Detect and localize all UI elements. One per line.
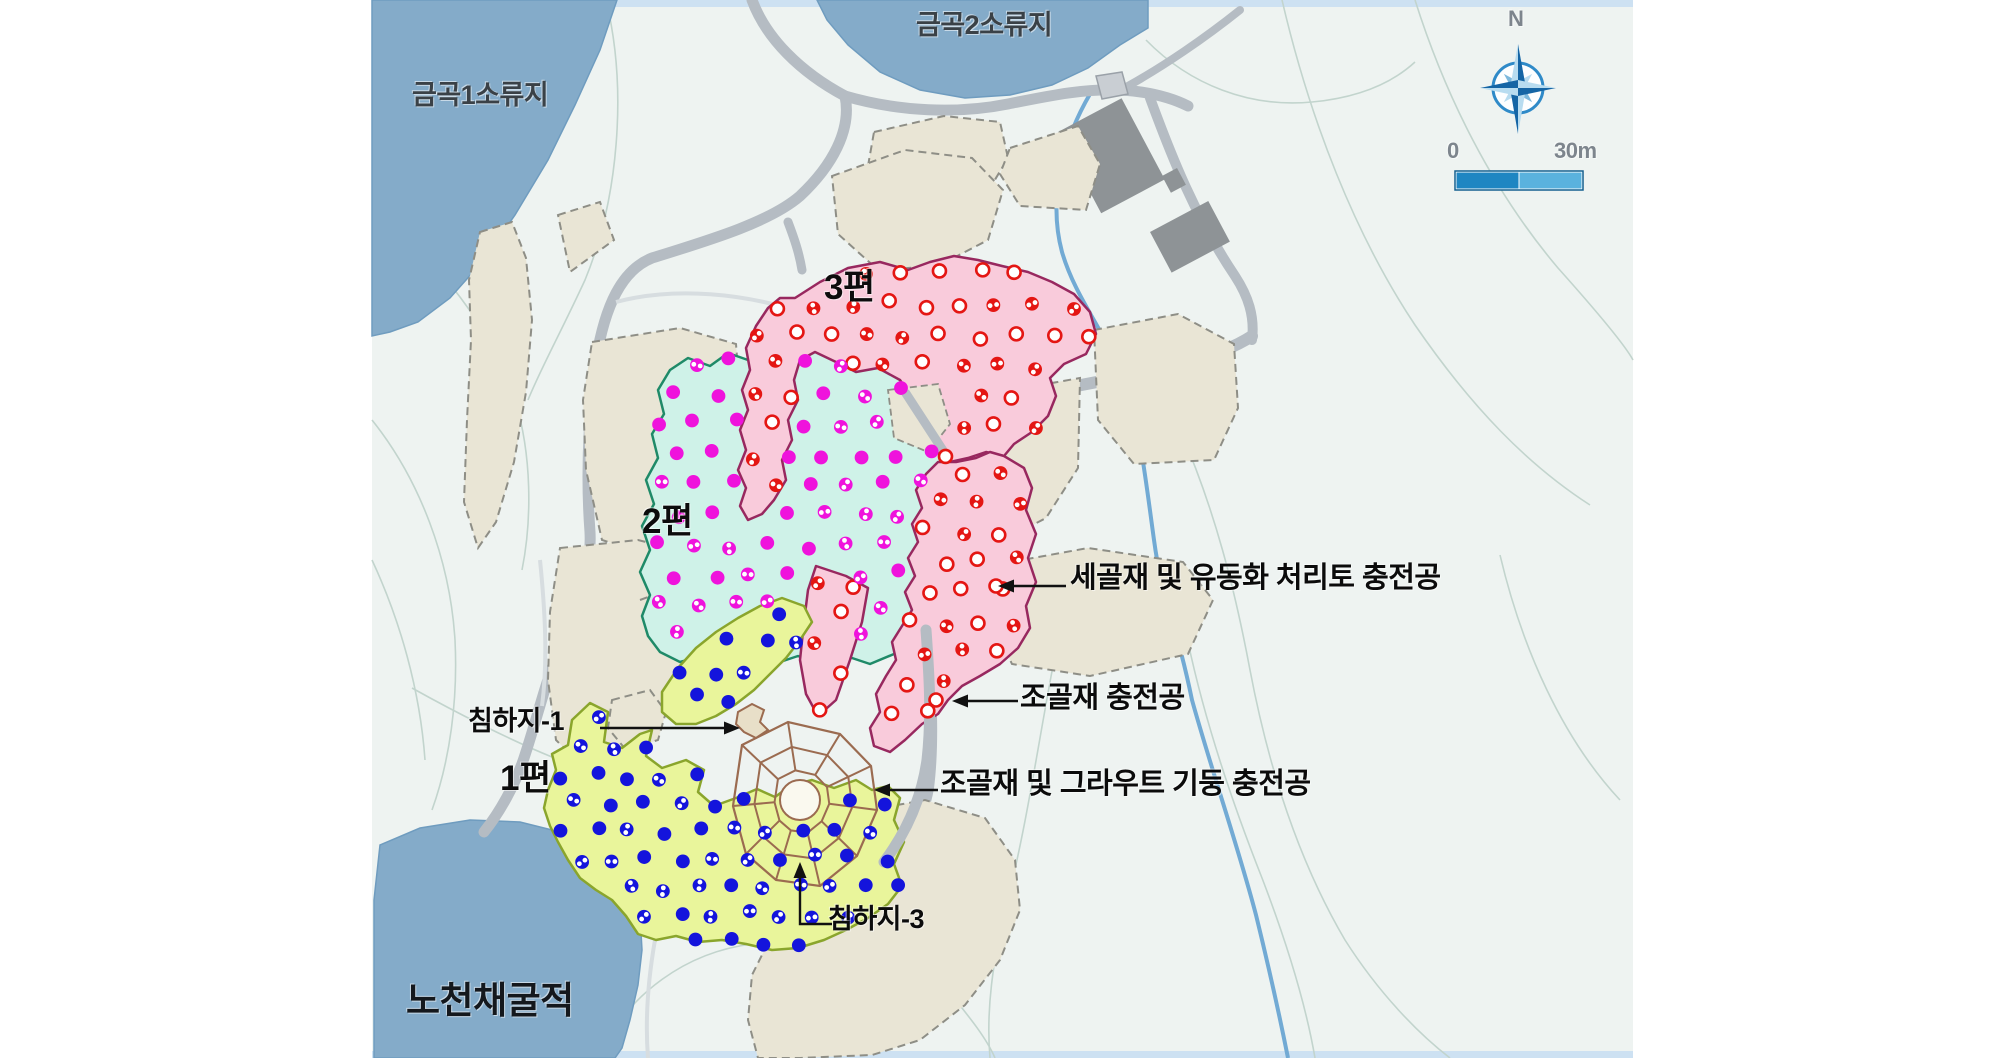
scale-zero-label: 0 [1447, 140, 1459, 162]
subsidence-1-label: 침하지-1 [468, 708, 564, 735]
site-map-page: 금곡1소류지금곡2소류지3편2편1편침하지-1침하지-3노천채굴적세골재 및 유… [0, 0, 2008, 1058]
annotation-coarse-aggregate: 조골재 충전공 [1020, 684, 1185, 713]
compass-n-label: N [1508, 8, 1523, 30]
lake1-label: 금곡1소류지 [412, 82, 548, 109]
lake2-label: 금곡2소류지 [916, 12, 1052, 39]
subsidence-3-label: 침하지-3 [828, 906, 924, 933]
zone3-label: 3편 [824, 270, 875, 305]
annotation-grout-column: 조골재 및 그라우트 기둥 충전공 [940, 770, 1311, 799]
zone2-label: 2편 [642, 504, 693, 539]
site-map-canvas [0, 0, 2008, 1058]
scale-30m-label: 30m [1554, 140, 1597, 162]
open-pit-label: 노천채굴적 [406, 982, 574, 1019]
zone1-label: 1편 [500, 761, 551, 796]
annotation-fine-aggregate: 세골재 및 유동화 처리토 충전공 [1070, 564, 1441, 593]
scale-bar [1455, 171, 1583, 190]
